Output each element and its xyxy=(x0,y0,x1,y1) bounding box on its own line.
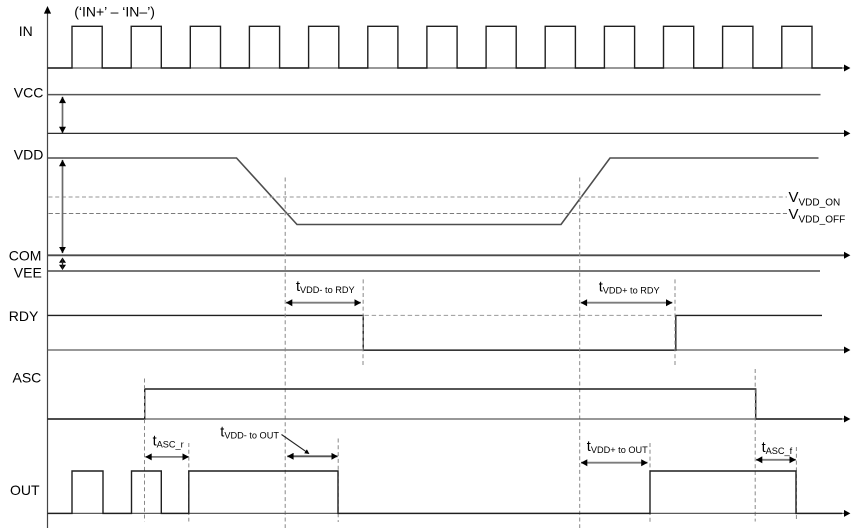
svg-text:OUT: OUT xyxy=(10,482,40,498)
svg-text:(‘IN+’ – ‘IN–’): (‘IN+’ – ‘IN–’) xyxy=(74,3,155,19)
svg-text:VDD: VDD xyxy=(14,147,44,163)
svg-text:tVDD+ to OUT: tVDD+ to OUT xyxy=(587,439,648,455)
svg-text:tVDD- to OUT: tVDD- to OUT xyxy=(220,425,279,441)
svg-text:tASC_r: tASC_r xyxy=(153,434,184,450)
svg-text:VCC: VCC xyxy=(14,85,44,101)
svg-text:RDY: RDY xyxy=(9,308,39,324)
svg-text:COM: COM xyxy=(9,248,42,264)
svg-text:IN: IN xyxy=(19,23,33,39)
svg-text:ASC: ASC xyxy=(13,369,42,385)
svg-text:VEE: VEE xyxy=(14,264,42,280)
svg-text:tASC_f: tASC_f xyxy=(762,440,793,456)
svg-text:VVDD_OFF: VVDD_OFF xyxy=(789,206,846,226)
svg-text:tVDD+ to RDY: tVDD+ to RDY xyxy=(599,280,660,296)
svg-text:tVDD- to RDY: tVDD- to RDY xyxy=(296,279,355,295)
